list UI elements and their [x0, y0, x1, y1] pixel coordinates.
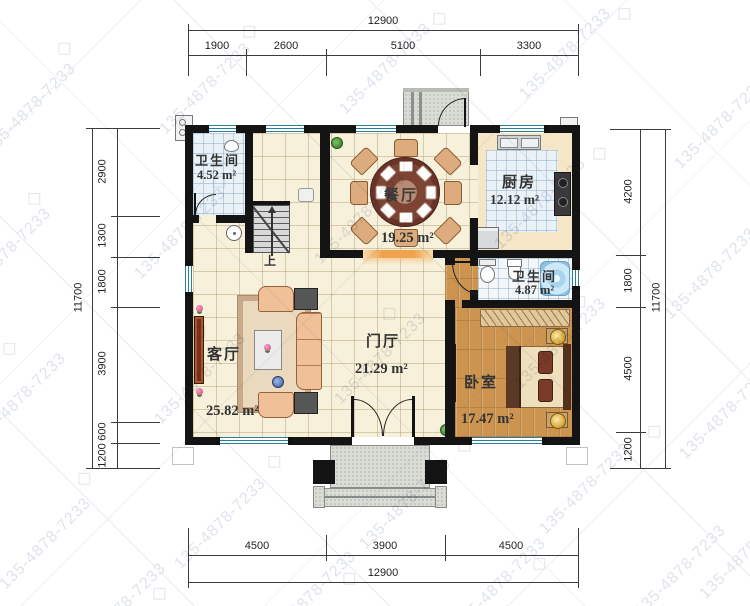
wall — [240, 125, 262, 133]
wall — [572, 290, 580, 445]
sink-basin — [521, 138, 539, 148]
room-area-bedroom: 17.47 m² — [461, 411, 514, 428]
entry-step-2 — [316, 497, 444, 507]
basin-drain — [233, 232, 236, 235]
dim-top-total: 12900 — [353, 15, 413, 28]
sink-basin — [500, 138, 518, 148]
room-area-living: 25.82 m² — [206, 403, 259, 420]
floor-plan-canvas: 卫生间 4.52 m² 餐厅 19.25 m² 厨房 12.12 m² 卫生间 … — [0, 0, 750, 606]
window — [496, 125, 548, 133]
watermark-diamond-icon: ◇ — [48, 33, 78, 63]
wall — [308, 125, 352, 133]
entry-porch — [330, 445, 430, 488]
window — [205, 125, 240, 133]
tv-cabinet-living — [194, 316, 204, 384]
sofa-corner-table — [294, 392, 318, 414]
place-setting — [426, 186, 437, 200]
dim-bottom-seg: 3900 — [360, 540, 410, 553]
pillow — [538, 379, 553, 402]
place-setting — [399, 161, 413, 172]
dim-bottom-total: 12900 — [353, 567, 413, 580]
room-label-living: 客厅 — [207, 343, 241, 364]
wall — [400, 125, 438, 133]
door-leaf — [452, 261, 478, 263]
place-setting — [399, 212, 413, 223]
wardrobe — [480, 309, 570, 327]
room-label-foyer: 门厅 — [366, 330, 400, 351]
burner — [558, 197, 568, 207]
watermark-diamond-icon: ◇ — [583, 138, 613, 168]
wall — [185, 296, 193, 445]
bed-blanket-roll — [506, 346, 521, 408]
watermark-diamond-icon: ◇ — [143, 578, 173, 606]
watermark-text: 135-4878-7233 — [0, 495, 95, 594]
dim-right-seg: 1200 — [623, 426, 636, 474]
room-area-bathroom2: 4.87 m² — [515, 283, 554, 298]
wall — [433, 250, 580, 258]
sofa-corner-table — [294, 288, 318, 310]
burner — [558, 178, 568, 188]
wall — [320, 125, 330, 258]
bedside-lamp — [550, 413, 566, 429]
dining-chair — [350, 181, 368, 205]
room-label-dining: 餐厅 — [384, 184, 418, 205]
watermark-text: 135-4878-7233 — [661, 225, 750, 324]
wall — [470, 133, 478, 165]
decor-flower — [196, 305, 203, 312]
door-leaf — [464, 98, 466, 127]
wall — [462, 300, 580, 308]
watermark-diamond-icon: ◇ — [0, 333, 24, 363]
dim-left-seg: 3900 — [97, 340, 110, 388]
wall — [330, 250, 363, 258]
window — [185, 262, 193, 296]
watermark-text: 135-4878-7233 — [0, 205, 55, 304]
room-label-bedroom: 卧室 — [464, 371, 498, 392]
rear-porch-column — [419, 92, 422, 126]
armchair — [258, 286, 294, 312]
watermark-diamond-icon: ◇ — [18, 183, 48, 213]
dim-left-seg: 1200 — [97, 432, 110, 480]
watermark-text: 135-4878-7233 — [171, 475, 270, 574]
dining-plant — [331, 137, 343, 149]
entry-step-1 — [316, 488, 444, 497]
pillow — [538, 351, 553, 374]
room-label-bathroom1: 卫生间 — [195, 150, 240, 169]
dim-left-seg: 1800 — [97, 258, 110, 306]
dining-chair — [394, 139, 418, 157]
staircase-arrow-line — [271, 210, 273, 256]
washbasin-hall — [226, 225, 242, 241]
watermark-text: 135-4878-7233 — [71, 560, 170, 606]
room-area-kitchen: 12.12 m² — [490, 192, 539, 208]
threshold-glow — [363, 258, 433, 265]
dim-left-seg: 1300 — [97, 212, 110, 260]
room-label-kitchen: 厨房 — [502, 171, 536, 192]
entry-door-leaf — [351, 396, 354, 437]
dim-top-seg: 2600 — [261, 40, 311, 53]
dim-top-seg: 5100 — [378, 40, 428, 53]
washing-machine — [477, 227, 499, 249]
watermark-text: 135-4878-7233 — [671, 75, 750, 174]
sofa-main — [296, 312, 322, 390]
watermark-diamond-icon: ◇ — [423, 3, 453, 33]
dining-chair — [444, 181, 462, 205]
entry-door-leaf — [412, 396, 415, 437]
entry-rail-left — [313, 486, 325, 508]
window — [352, 125, 400, 133]
table-flowers — [264, 344, 271, 351]
wall — [245, 133, 253, 253]
stairs-up-label: 上 — [264, 252, 276, 269]
armchair — [258, 392, 294, 418]
wall — [470, 125, 496, 133]
decor-flower — [196, 388, 203, 395]
watermark-diamond-icon: ◇ — [258, 446, 288, 476]
watermark-text: 135-4878-7233 — [696, 505, 750, 604]
dim-right-seg: 4500 — [623, 345, 636, 393]
wall — [216, 215, 253, 223]
wall — [193, 215, 199, 223]
watermark-text: 135-4878-7233 — [516, 5, 615, 104]
wall — [572, 125, 580, 266]
bedside-lamp — [550, 329, 566, 345]
wall — [445, 300, 455, 437]
entry-column-left — [313, 460, 335, 484]
rear-porch-column — [411, 92, 414, 126]
kitchen-sink — [497, 135, 541, 150]
wall — [414, 437, 468, 445]
dim-right-seg: 1800 — [623, 257, 636, 305]
stove — [554, 172, 571, 216]
dim-right-total: 11700 — [651, 274, 664, 322]
door-leaf — [194, 193, 196, 216]
wall — [292, 437, 352, 445]
room-area-dining: 19.25 m² — [381, 230, 434, 247]
wall — [185, 125, 193, 262]
wall — [470, 218, 478, 250]
floor-vase — [272, 376, 284, 388]
window — [262, 125, 308, 133]
room-area-bathroom1: 4.52 m² — [197, 168, 236, 183]
toilet-bath2-bowl — [480, 266, 495, 283]
watermark-diamond-icon: ◇ — [608, 0, 638, 28]
dim-top-seg: 3300 — [504, 40, 554, 53]
threshold-strip — [363, 250, 433, 258]
dim-right-seg: 4200 — [623, 168, 636, 216]
toilet-bath2 — [479, 259, 496, 266]
small-appliance — [298, 188, 314, 202]
watermark-text: 135-4878-7233 — [0, 350, 70, 449]
window — [572, 266, 580, 290]
outside-step-left — [172, 447, 194, 465]
staircase-arrow-head — [268, 206, 276, 213]
dim-left-seg: 2900 — [97, 148, 110, 196]
dim-top-seg: 1900 — [192, 40, 242, 53]
watermark-text: 135-4878-7233 — [0, 60, 80, 159]
outside-step-right — [566, 447, 588, 465]
watermark-text: 135-4878-7233 — [261, 548, 360, 606]
watermark-text: 135-4878-7233 — [676, 365, 750, 464]
window — [468, 437, 546, 445]
window — [216, 437, 292, 445]
entry-rail-right — [435, 486, 447, 508]
dim-bottom-seg: 4500 — [232, 540, 282, 553]
dim-bottom-seg: 4500 — [486, 540, 536, 553]
bed-headboard — [563, 344, 571, 410]
staircase-top-edge — [253, 201, 290, 205]
room-area-foyer: 21.29 m² — [355, 361, 408, 378]
watermark-text: 135-4878-7233 — [631, 522, 730, 606]
dim-left-total: 11700 — [73, 274, 86, 322]
entry-column-right — [425, 460, 447, 484]
